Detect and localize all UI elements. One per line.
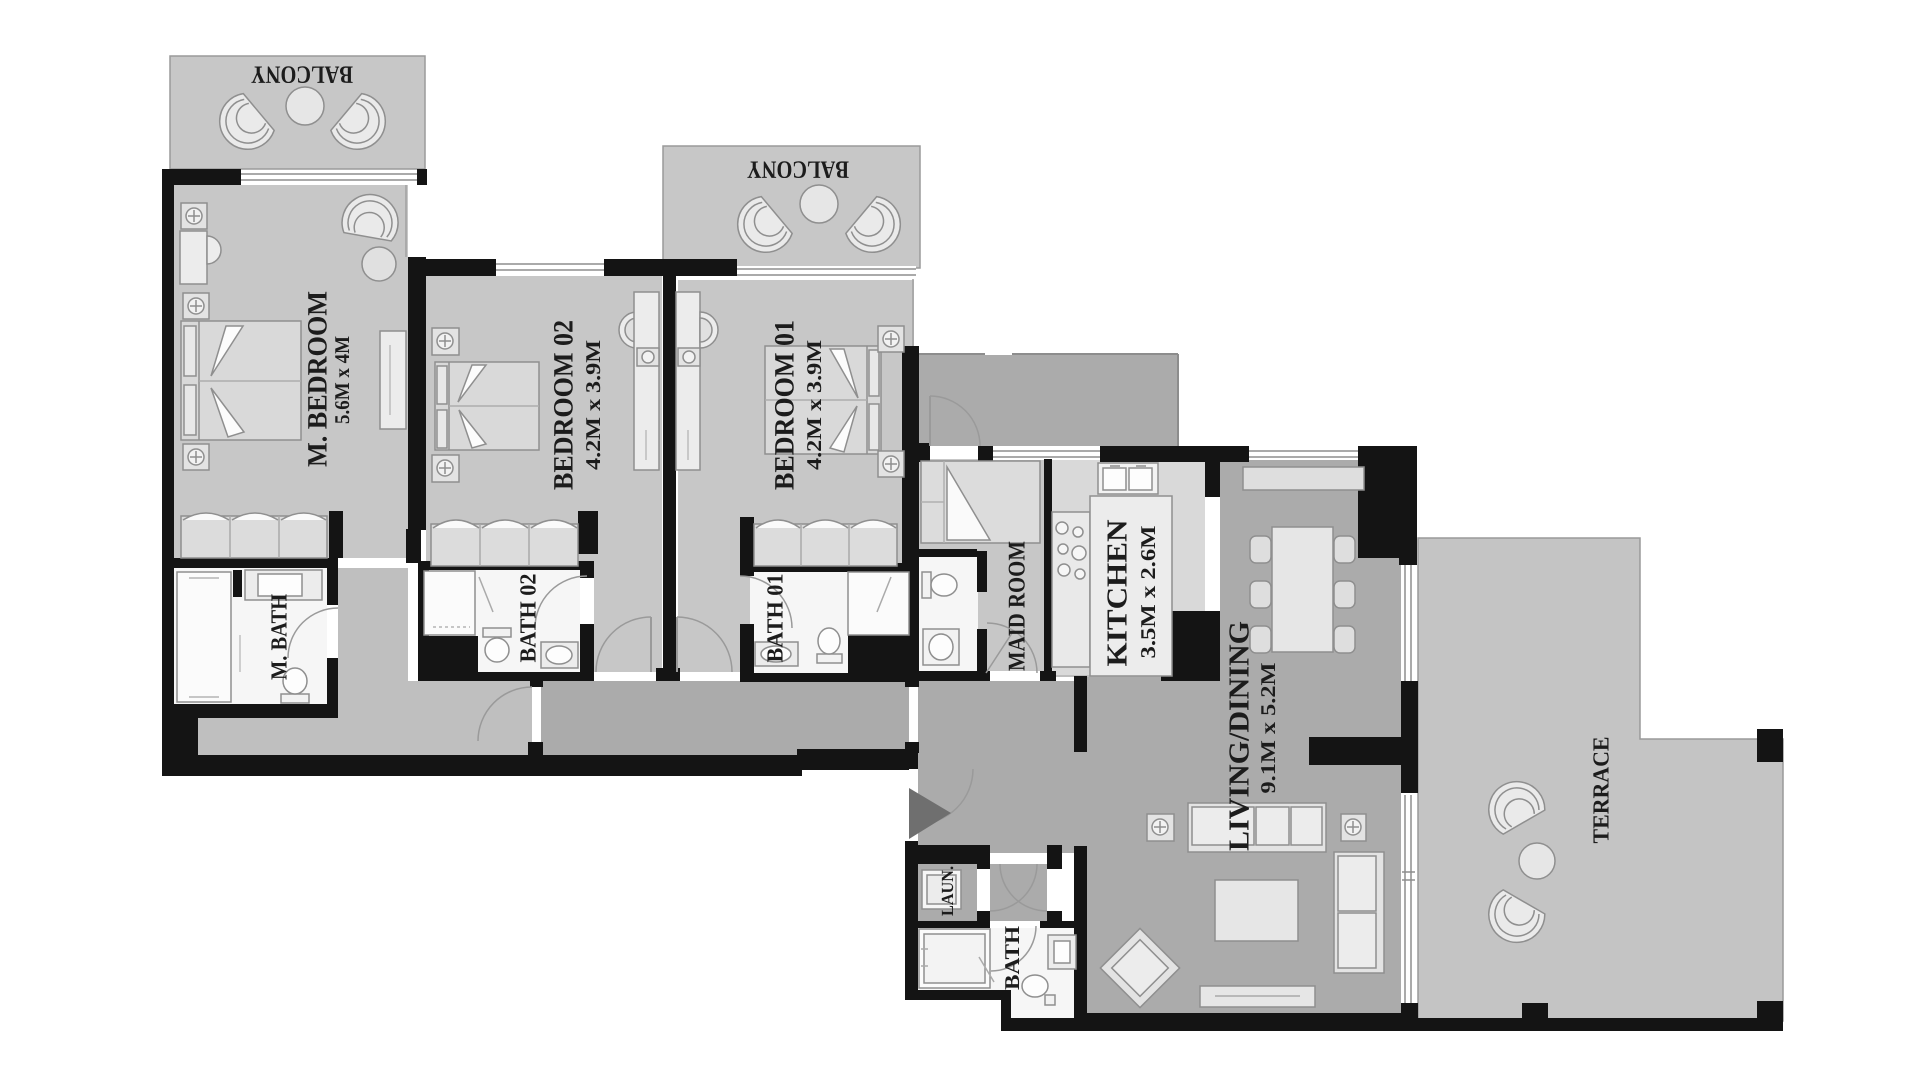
svg-text:M. BEDROOM: M. BEDROOM [302,291,333,467]
svg-text:KITCHEN: KITCHEN [1102,519,1134,666]
svg-text:9.1M x 5.2M: 9.1M x 5.2M [1256,662,1280,793]
svg-text:TERRACE: TERRACE [1588,737,1613,844]
svg-text:BATH: BATH [1000,926,1024,990]
svg-text:LIVING/DINING: LIVING/DINING [1224,621,1256,851]
svg-text:4.2M x 3.9M: 4.2M x 3.9M [581,340,605,470]
svg-text:5.6M x 4M: 5.6M x 4M [330,336,354,424]
svg-text:3.5M x 2.6M: 3.5M x 2.6M [1136,525,1160,658]
svg-text:M. BATH: M. BATH [266,594,291,680]
svg-text:BATH 02: BATH 02 [515,574,540,663]
svg-text:LAUN.: LAUN. [938,866,957,916]
svg-text:BALCONY: BALCONY [251,60,353,87]
svg-text:4.2M x 3.9M: 4.2M x 3.9M [802,340,826,470]
svg-text:BEDROOM 01: BEDROOM 01 [769,320,800,490]
svg-text:MAID ROOM: MAID ROOM [1005,541,1031,671]
svg-text:BEDROOM 02: BEDROOM 02 [548,320,579,490]
svg-text:BATH 01: BATH 01 [762,574,787,663]
svg-text:BALCONY: BALCONY [747,155,849,182]
